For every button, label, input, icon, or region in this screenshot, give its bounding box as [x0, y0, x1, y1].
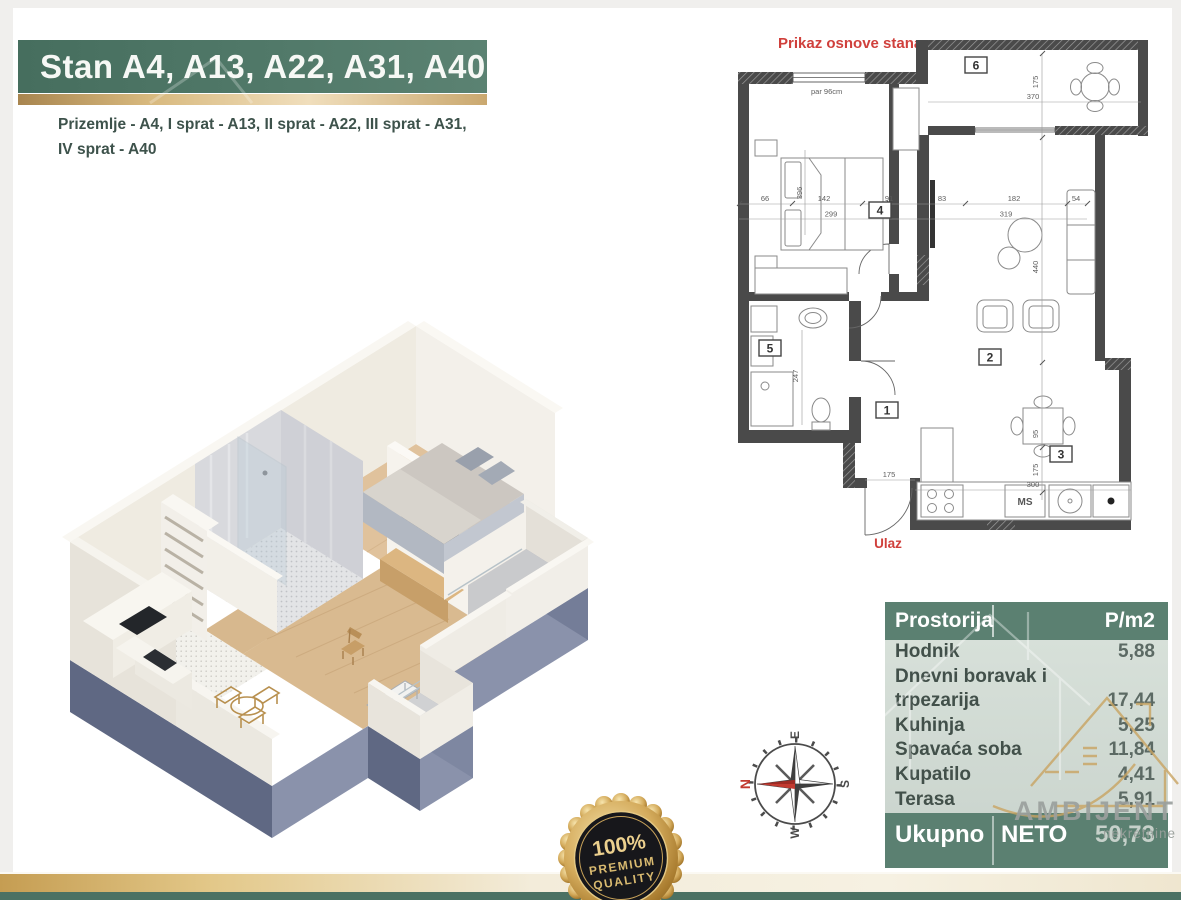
dim-54: 54 — [1072, 194, 1080, 203]
logo-name: AMBIJENT — [1014, 796, 1176, 827]
compass-west: W — [788, 827, 802, 839]
dim-440: 440 — [1031, 261, 1040, 274]
compass-south: S — [838, 780, 852, 788]
premium-quality-badge-icon: 100% PREMIUM QUALITY — [549, 788, 693, 900]
dim-95: 95 — [1031, 430, 1040, 438]
table-header-room: Prostorija — [895, 602, 993, 640]
gold-stripe — [18, 94, 487, 105]
dishwasher-label: MS — [1018, 497, 1033, 508]
render-root — [62, 321, 594, 838]
dim-175-terrace: 175 — [1031, 76, 1040, 89]
dim-83: 83 — [938, 194, 946, 203]
edge-top — [0, 0, 1181, 8]
dim-142: 142 — [818, 194, 831, 203]
table-row: Dnevni boravak i — [885, 665, 1168, 690]
agency-logo: AMBIJENT nekretnine — [985, 688, 1180, 853]
table-row: Hodnik5,88 — [885, 640, 1168, 665]
plan-title: Prikaz osnove stana — [778, 35, 923, 52]
floor-plan: Prikaz osnove stana — [725, 30, 1181, 570]
compass-rose-icon: N E S W — [738, 726, 852, 840]
room-label-2: 2 — [987, 351, 994, 365]
area-table-header: Prostorija P/m2 — [885, 602, 1168, 640]
title-banner: Stan A4, A13, A22, A31, A40 — [18, 40, 487, 93]
dim-175-entrance: 175 — [883, 470, 896, 479]
table-header-divider — [992, 605, 994, 637]
room-label-5: 5 — [767, 342, 774, 356]
footer-label-ukupno: Ukupno — [895, 817, 984, 853]
subtitle-line1: Prizemlje - A4, I sprat - A13, II sprat … — [58, 112, 508, 137]
edge-left — [0, 0, 13, 900]
window-note: par 96cm — [811, 87, 842, 96]
dim-299: 299 — [825, 210, 838, 219]
dim-175-kitchen: 175 — [1031, 464, 1040, 477]
logo-tagline: nekretnine — [1103, 826, 1176, 841]
compass-north: N — [738, 779, 753, 789]
dim-396: 396 — [795, 187, 804, 200]
room-label-6: 6 — [973, 59, 980, 73]
compass-east: E — [788, 731, 802, 739]
room-label-3: 3 — [1058, 448, 1065, 462]
dim-319: 319 — [1000, 210, 1013, 219]
table-header-area: P/m2 — [1105, 602, 1155, 640]
entrance-label: Ulaz — [874, 536, 902, 551]
isometric-3d-render — [15, 245, 690, 870]
flyer-page: Stan A4, A13, A22, A31, A40 Prizemlje - … — [0, 0, 1181, 900]
subtitle: Prizemlje - A4, I sprat - A13, II sprat … — [58, 112, 508, 162]
subtitle-line2: IV sprat - A40 — [58, 137, 508, 162]
room-label-4: 4 — [877, 204, 884, 218]
dim-66: 66 — [761, 194, 769, 203]
page-title: Stan A4, A13, A22, A31, A40 — [40, 48, 486, 85]
dim-370: 370 — [1027, 92, 1040, 101]
dim-247: 247 — [791, 370, 800, 383]
dim-300: 300 — [1027, 480, 1040, 489]
dim-182: 182 — [1008, 194, 1021, 203]
room-label-1: 1 — [884, 404, 891, 418]
